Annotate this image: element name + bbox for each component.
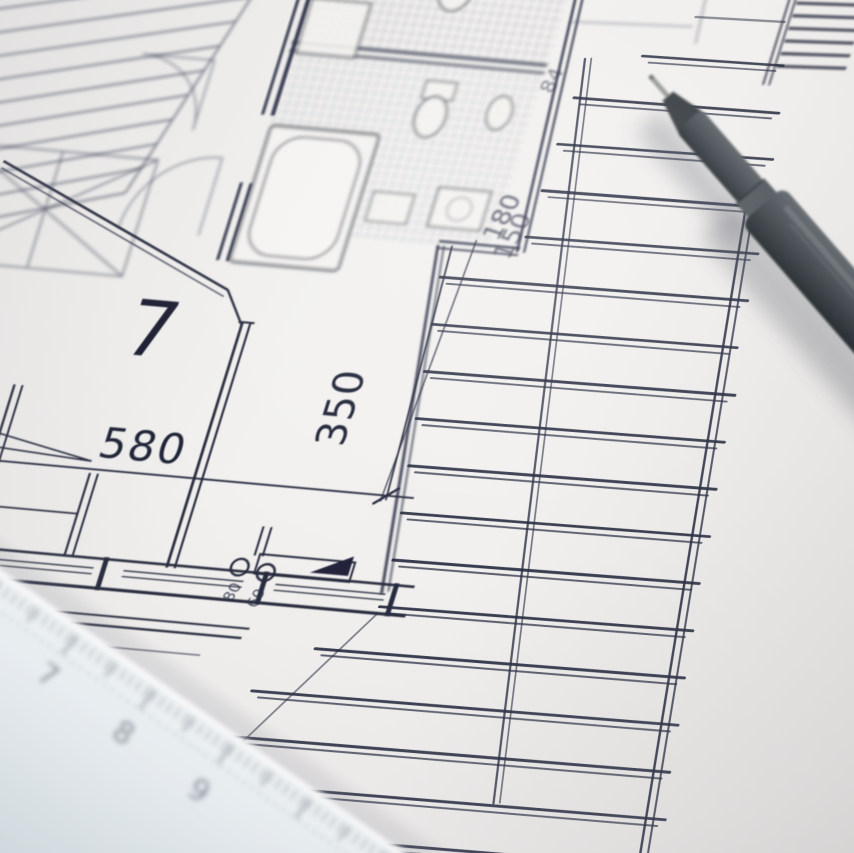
deck-plank <box>696 14 785 25</box>
deck-plank <box>430 320 737 357</box>
bathroom <box>225 0 587 284</box>
deck-plank <box>439 273 748 310</box>
deck-plank <box>313 645 684 688</box>
deck-plank <box>391 556 699 593</box>
deck-lower-edge <box>148 599 378 846</box>
bathtub <box>230 125 380 271</box>
dimension-580-label: 580 <box>93 419 194 474</box>
deck-plank <box>414 415 724 452</box>
dimension-350-label: 350 <box>306 367 376 448</box>
deck-plank <box>250 687 678 735</box>
deck-plank <box>556 140 773 169</box>
deck-plank <box>154 822 655 853</box>
deck-plank <box>572 95 779 122</box>
deck-plank <box>378 603 693 641</box>
stair-winder <box>0 143 158 277</box>
room-number-label: 7 <box>113 284 190 377</box>
floor-plan-photo: 80 60 580 350 7 180 150 84 <box>0 0 854 853</box>
deck-plank <box>400 509 710 546</box>
deck-plank <box>423 368 735 406</box>
roof-hatch-bars <box>763 0 854 92</box>
dimension-350: 350 <box>291 231 477 502</box>
deck-plank <box>524 233 758 263</box>
dimension-60-label: 60 <box>243 587 269 610</box>
door-swings <box>89 54 251 236</box>
exterior-wall-band <box>0 487 429 672</box>
deck-plank <box>641 53 784 74</box>
deck-plank <box>176 776 665 829</box>
dimension-84-label: 84 <box>535 65 570 96</box>
dimension-580: 580 <box>0 408 429 507</box>
deck-plank <box>206 731 670 782</box>
floor-plan-sheet: 80 60 580 350 7 180 150 84 <box>0 0 854 853</box>
far-room-lines <box>568 0 725 44</box>
deck-plank <box>407 462 716 499</box>
